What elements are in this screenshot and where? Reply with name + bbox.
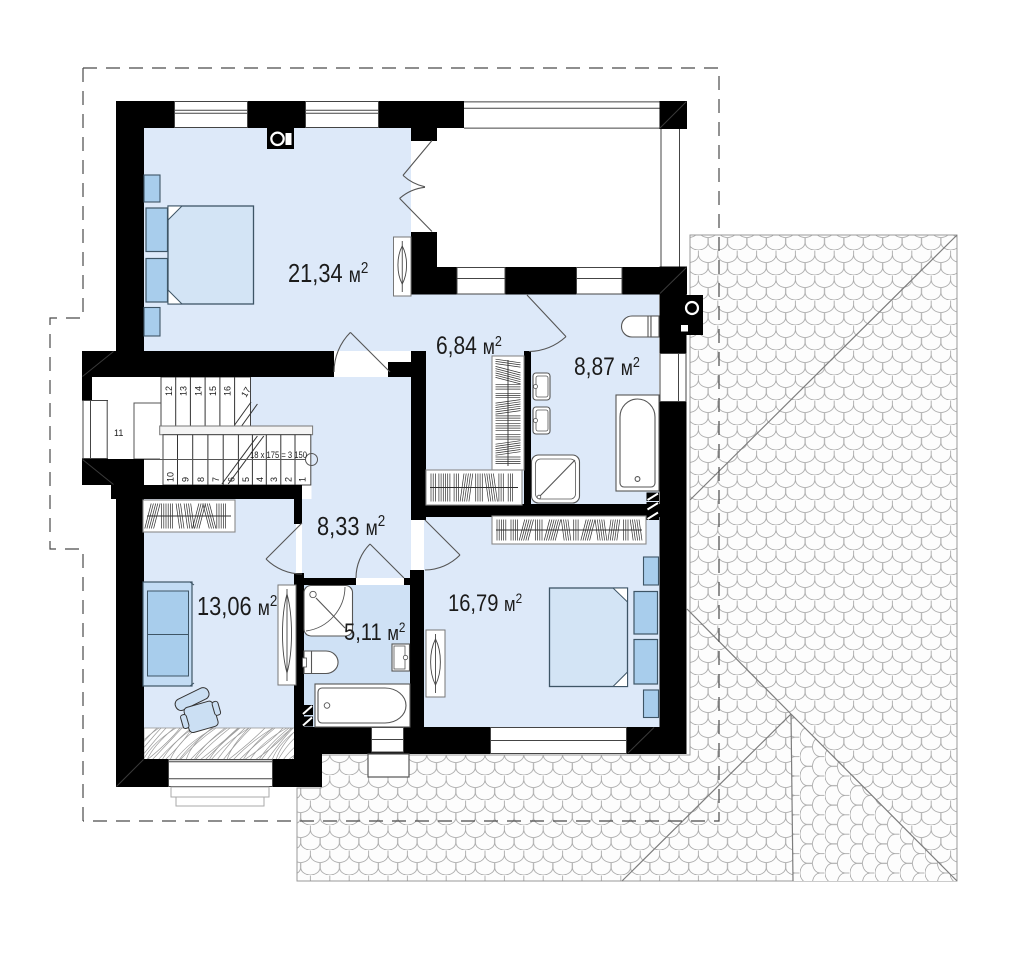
svg-text:4: 4 [255, 477, 265, 482]
svg-text:6: 6 [226, 477, 236, 482]
svg-text:8,33 м2: 8,33 м2 [317, 512, 385, 541]
svg-text:9: 9 [181, 477, 191, 482]
svg-text:15: 15 [208, 386, 218, 396]
svg-text:2: 2 [283, 477, 293, 482]
svg-text:12: 12 [164, 386, 174, 396]
svg-text:8,87 м2: 8,87 м2 [574, 352, 640, 380]
svg-text:1: 1 [298, 477, 308, 482]
svg-text:13: 13 [179, 386, 189, 396]
svg-text:14: 14 [193, 386, 203, 396]
svg-text:5: 5 [241, 477, 251, 482]
svg-text:18 x 175 = 3 150: 18 x 175 = 3 150 [250, 450, 307, 461]
svg-text:13,06 м2: 13,06 м2 [197, 592, 277, 621]
svg-text:8: 8 [196, 477, 206, 482]
svg-text:3: 3 [269, 477, 279, 482]
svg-text:5,11 м2: 5,11 м2 [344, 618, 405, 645]
svg-text:11: 11 [114, 428, 123, 438]
svg-text:16: 16 [223, 386, 233, 396]
svg-text:7: 7 [211, 477, 221, 482]
svg-text:6,84 м2: 6,84 м2 [436, 331, 502, 359]
svg-text:10: 10 [165, 472, 175, 482]
svg-text:21,34 м2: 21,34 м2 [288, 259, 368, 288]
svg-text:16,79 м2: 16,79 м2 [448, 589, 522, 616]
